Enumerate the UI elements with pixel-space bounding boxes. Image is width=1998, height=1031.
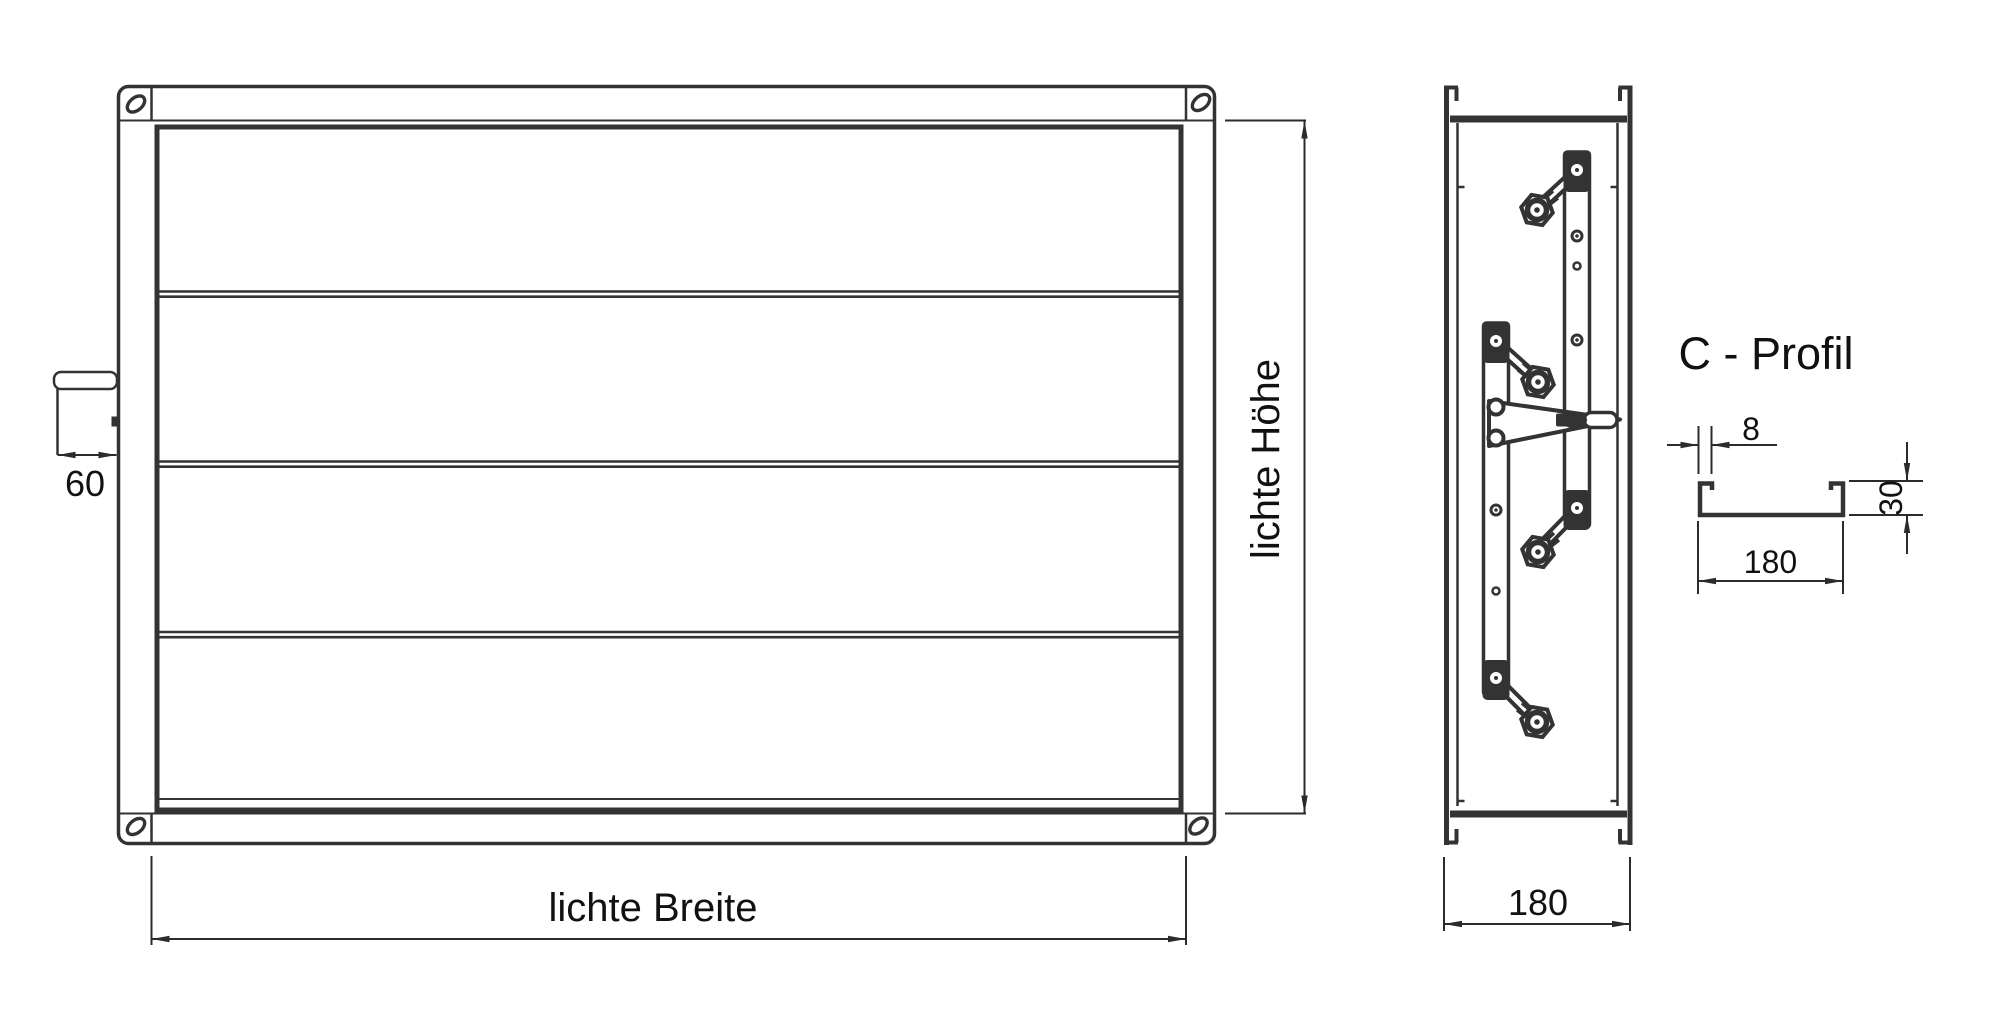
side-view: 180 [1444,86,1633,932]
arrowhead [1698,578,1716,584]
dim-8: 8 [1667,411,1777,474]
crank-ring [1489,431,1504,446]
louver-blade-dividers [157,292,1181,638]
arrowhead [1444,921,1462,927]
arrowhead [1168,936,1186,942]
front-view: 60 lichte Höhe lichte Breite [54,87,1308,946]
bar-hole [1572,335,1582,345]
arrowhead [1612,921,1630,927]
arrowhead [1825,578,1843,584]
drawing-page: 60 lichte Höhe lichte Breite [0,0,1998,1031]
width-label: lichte Breite [549,886,758,930]
dim-180-profile: 180 [1698,521,1843,594]
bar-hole [1572,231,1582,241]
bar-head-pivot [1564,490,1591,530]
dim-lichte-breite: lichte Breite [152,856,1187,945]
height-label: lichte Höhe [1244,359,1288,559]
arrowhead [1301,121,1307,139]
dim-30: 30 [1849,442,1923,554]
bar-hole [1574,263,1581,270]
bar-hole [1491,505,1501,515]
drive-axle [1562,412,1587,429]
c-profile-detail: C - Profil 8 30 [1667,328,1923,594]
axle-stub [112,417,119,427]
frame-outer-edge [119,87,1215,844]
crank-slot [1584,413,1617,428]
arrowhead [152,936,170,942]
c-profile-title: C - Profil [1678,328,1853,379]
arrowhead [1301,796,1307,814]
bar-hole [1493,588,1500,595]
corner-hole [1187,815,1210,838]
corner-hole [1189,91,1212,114]
bracket-cap [54,372,117,389]
arrowhead [99,452,117,458]
flange-dim-text: 30 [1873,480,1909,516]
corner-hole [124,815,147,838]
arrowhead [1904,515,1910,533]
arrowhead [1712,442,1730,448]
c-profile-section [1700,484,1843,516]
drive-shaft-bracket: 60 [54,372,118,504]
pivot-clamp-ears [1517,191,1559,717]
bar-head-pivot [1483,660,1510,700]
technical-drawing: 60 lichte Höhe lichte Breite [0,0,1998,1031]
blade-linkage-mechanism [1483,152,1621,738]
frame-opening-edge [157,127,1181,810]
bar-head-pivot [1483,323,1510,363]
profile-width-dim-text: 180 [1744,544,1797,580]
dim-60-text: 60 [65,463,105,504]
bar-head-pivot [1564,152,1591,192]
depth-dim-text: 180 [1508,882,1568,923]
dim-180-side: 180 [1444,857,1630,931]
arrowhead [1904,463,1910,481]
arrowhead [58,452,76,458]
corner-hole [124,93,147,116]
thickness-dim-text: 8 [1742,411,1760,447]
dim-lichte-hoehe: lichte Höhe [1225,121,1308,814]
crank-ring [1489,400,1504,415]
arrowhead [1681,442,1699,448]
